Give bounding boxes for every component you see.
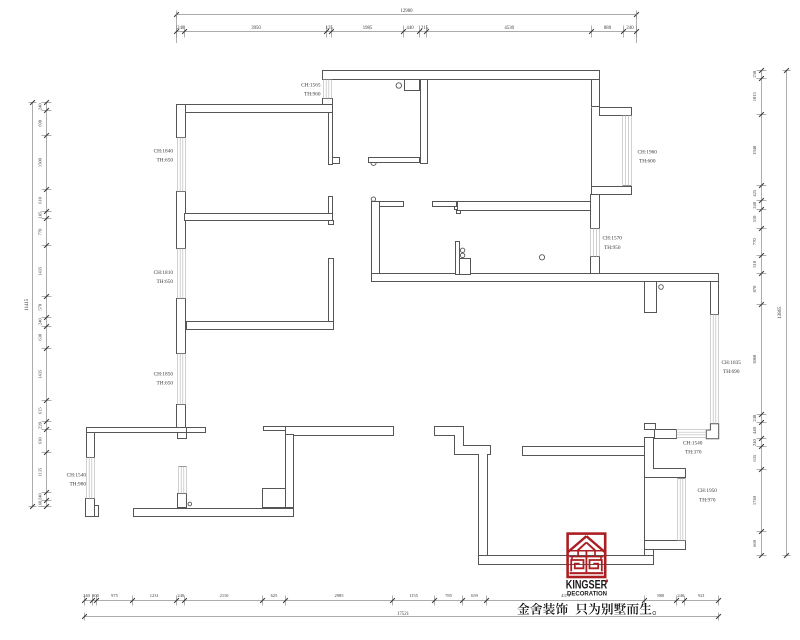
- svg-text:4530: 4530: [504, 26, 514, 31]
- svg-text:240: 240: [677, 593, 685, 598]
- svg-text:17521: 17521: [397, 612, 410, 617]
- svg-text:240: 240: [177, 593, 185, 598]
- svg-text:440: 440: [752, 426, 757, 434]
- svg-text:785: 785: [445, 593, 453, 598]
- svg-text:TH:690: TH:690: [723, 369, 740, 375]
- svg-text:240: 240: [83, 593, 91, 598]
- svg-text:690: 690: [38, 119, 43, 127]
- svg-text:160: 160: [38, 500, 43, 508]
- svg-text:215: 215: [421, 26, 429, 31]
- svg-text:240: 240: [626, 26, 634, 31]
- svg-text:2110: 2110: [220, 593, 230, 598]
- svg-text:240: 240: [752, 414, 757, 422]
- svg-text:CH:1565: CH:1565: [301, 83, 321, 89]
- svg-text:240: 240: [38, 318, 43, 326]
- svg-text:TH:650: TH:650: [157, 381, 174, 387]
- svg-text:1940: 1940: [752, 145, 757, 155]
- svg-text:1155: 1155: [409, 593, 419, 598]
- svg-text:3950: 3950: [251, 26, 261, 31]
- svg-text:2985: 2985: [335, 593, 345, 598]
- svg-text:TH:980: TH:980: [70, 482, 87, 488]
- svg-text:CH:1850: CH:1850: [154, 372, 174, 378]
- svg-text:1740: 1740: [752, 495, 757, 505]
- svg-text:660: 660: [752, 539, 757, 547]
- svg-text:1435: 1435: [38, 369, 43, 379]
- svg-text:220: 220: [38, 421, 43, 429]
- svg-text:921: 921: [698, 593, 705, 598]
- svg-text:TH:650: TH:650: [157, 158, 174, 164]
- svg-text:CH:1950: CH:1950: [698, 488, 718, 494]
- svg-text:880: 880: [657, 593, 665, 598]
- svg-text:CH:1840: CH:1840: [154, 149, 174, 155]
- svg-text:570: 570: [38, 303, 43, 311]
- svg-text:440: 440: [406, 26, 414, 31]
- svg-text:TH:960: TH:960: [304, 92, 321, 98]
- svg-text:230: 230: [752, 70, 757, 78]
- svg-text:240: 240: [752, 201, 757, 209]
- svg-text:TH:970: TH:970: [699, 498, 716, 504]
- svg-text:13865: 13865: [778, 306, 783, 319]
- svg-text:240: 240: [752, 438, 757, 446]
- svg-text:1500: 1500: [38, 157, 43, 167]
- svg-text:CH:1540: CH:1540: [683, 441, 703, 447]
- svg-text:1985: 1985: [363, 26, 373, 31]
- svg-text:CH:1960: CH:1960: [638, 150, 658, 156]
- svg-text:880: 880: [604, 26, 612, 31]
- svg-text:1015: 1015: [752, 92, 757, 102]
- svg-text:800: 800: [92, 593, 100, 598]
- svg-text:630: 630: [38, 437, 43, 445]
- svg-text:770: 770: [38, 228, 43, 236]
- svg-text:11415: 11415: [25, 298, 30, 310]
- svg-text:770: 770: [752, 238, 757, 246]
- svg-text:12980: 12980: [401, 9, 414, 14]
- svg-text:240: 240: [38, 493, 43, 501]
- svg-text:635: 635: [752, 454, 757, 462]
- svg-text:1435: 1435: [38, 266, 43, 276]
- svg-text:CH:1570: CH:1570: [603, 236, 623, 242]
- svg-text:TH:370: TH:370: [685, 450, 702, 456]
- svg-text:TH:600: TH:600: [639, 159, 656, 165]
- svg-text:240: 240: [38, 103, 43, 111]
- svg-text:CH:1810: CH:1810: [154, 270, 174, 276]
- svg-text:3060: 3060: [752, 354, 757, 364]
- svg-text:510: 510: [752, 260, 757, 268]
- svg-text:630: 630: [38, 333, 43, 341]
- svg-text:240: 240: [177, 26, 185, 31]
- svg-text:125: 125: [326, 26, 334, 31]
- svg-text:870: 870: [752, 285, 757, 293]
- svg-text:425: 425: [752, 189, 757, 197]
- svg-text:510: 510: [752, 215, 757, 223]
- svg-text:615: 615: [38, 407, 43, 415]
- svg-text:DECORATION: DECORATION: [567, 590, 607, 597]
- svg-text:1135: 1135: [38, 467, 43, 477]
- svg-text:1231: 1231: [150, 593, 159, 598]
- svg-text:625: 625: [271, 593, 279, 598]
- svg-text:610: 610: [38, 196, 43, 204]
- svg-text:TH:650: TH:650: [157, 279, 174, 285]
- svg-text:TH:950: TH:950: [604, 245, 621, 251]
- svg-text:659: 659: [471, 593, 479, 598]
- svg-text:975: 975: [111, 593, 119, 598]
- svg-text:CH:1835: CH:1835: [722, 360, 742, 366]
- svg-text:185: 185: [38, 211, 43, 219]
- svg-text:CH:1540: CH:1540: [67, 473, 87, 479]
